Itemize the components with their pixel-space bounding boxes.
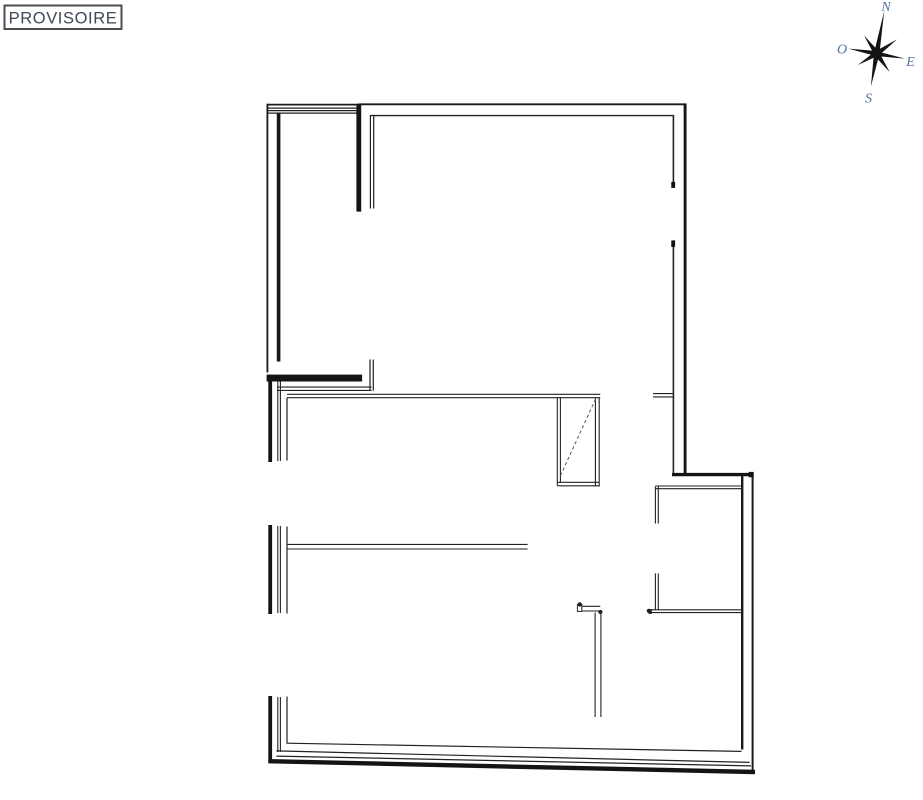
svg-text:N: N: [880, 0, 891, 15]
svg-text:PROVISOIRE: PROVISOIRE: [9, 10, 118, 28]
svg-text:E: E: [905, 55, 915, 70]
svg-text:S: S: [865, 92, 872, 107]
svg-text:O: O: [837, 43, 847, 58]
